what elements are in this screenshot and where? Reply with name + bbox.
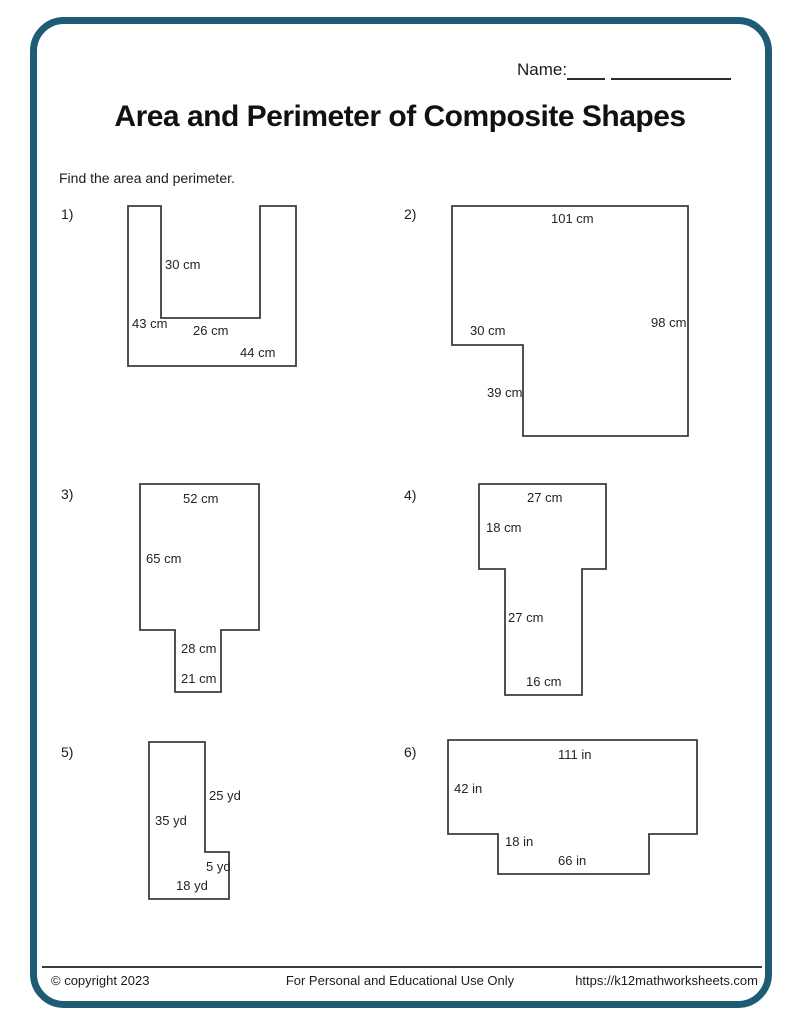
problem-5-dim-label: 35 yd (155, 813, 187, 828)
problem-2-dim-label: 101 cm (551, 211, 594, 226)
problem-6-dim-label: 18 in (505, 834, 533, 849)
problem-4-dim-label: 16 cm (526, 674, 561, 689)
problem-2-figure: 101 cm 98 cm 30 cm 39 cm (445, 198, 700, 446)
problem-3-dim-label: 28 cm (181, 641, 216, 656)
problem-5-dim-label: 5 yd (206, 859, 231, 874)
worksheet-page: Name: Area and Perimeter of Composite Sh… (0, 0, 800, 1035)
problem-2-dim-label: 30 cm (470, 323, 505, 338)
name-blank-line (567, 78, 605, 80)
problem-3-shape-outline (140, 484, 259, 692)
name-label: Name: (517, 60, 567, 80)
problem-1-figure: 30 cm 43 cm 26 cm 44 cm (120, 198, 305, 376)
problem-1-number: 1) (61, 206, 73, 222)
problem-3-figure: 52 cm 65 cm 28 cm 21 cm (133, 476, 275, 702)
problem-6-dim-label: 66 in (558, 853, 586, 868)
page-title: Area and Perimeter of Composite Shapes (0, 100, 800, 134)
problem-6-figure: 111 in 42 in 18 in 66 in (441, 732, 705, 883)
problem-6-dim-label: 111 in (558, 747, 592, 762)
problem-4-figure: 27 cm 18 cm 27 cm 16 cm (472, 476, 614, 704)
problem-4-dim-label: 27 cm (508, 610, 543, 625)
problem-3-dim-label: 21 cm (181, 671, 216, 686)
problem-4-dim-label: 18 cm (486, 520, 521, 535)
problem-6-number: 6) (404, 744, 416, 760)
problem-2-dim-label: 98 cm (651, 315, 686, 330)
problem-3-number: 3) (61, 486, 73, 502)
problem-3-dim-label: 65 cm (146, 551, 181, 566)
problem-1-dim-label: 44 cm (240, 345, 275, 360)
problem-6-dim-label: 42 in (454, 781, 482, 796)
footer-divider (42, 966, 762, 968)
problem-5-dim-label: 18 yd (176, 878, 208, 893)
problem-4-number: 4) (404, 487, 416, 503)
problem-5-figure: 25 yd 35 yd 5 yd 18 yd (142, 734, 242, 907)
problem-4-dim-label: 27 cm (527, 490, 562, 505)
problem-4-shape-outline (479, 484, 606, 695)
problem-5-number: 5) (61, 744, 73, 760)
problem-1-shape-outline (128, 206, 296, 366)
name-blank-line (611, 78, 731, 80)
problem-2-dim-label: 39 cm (487, 385, 522, 400)
problem-5-dim-label: 25 yd (209, 788, 241, 803)
problem-1-dim-label: 26 cm (193, 323, 228, 338)
instruction-text: Find the area and perimeter. (59, 170, 235, 186)
problem-2-number: 2) (404, 206, 416, 222)
footer-website-link: https://k12mathworksheets.com (575, 973, 758, 988)
problem-1-dim-label: 43 cm (132, 316, 167, 331)
problem-3-dim-label: 52 cm (183, 491, 218, 506)
problem-1-dim-label: 30 cm (165, 257, 200, 272)
